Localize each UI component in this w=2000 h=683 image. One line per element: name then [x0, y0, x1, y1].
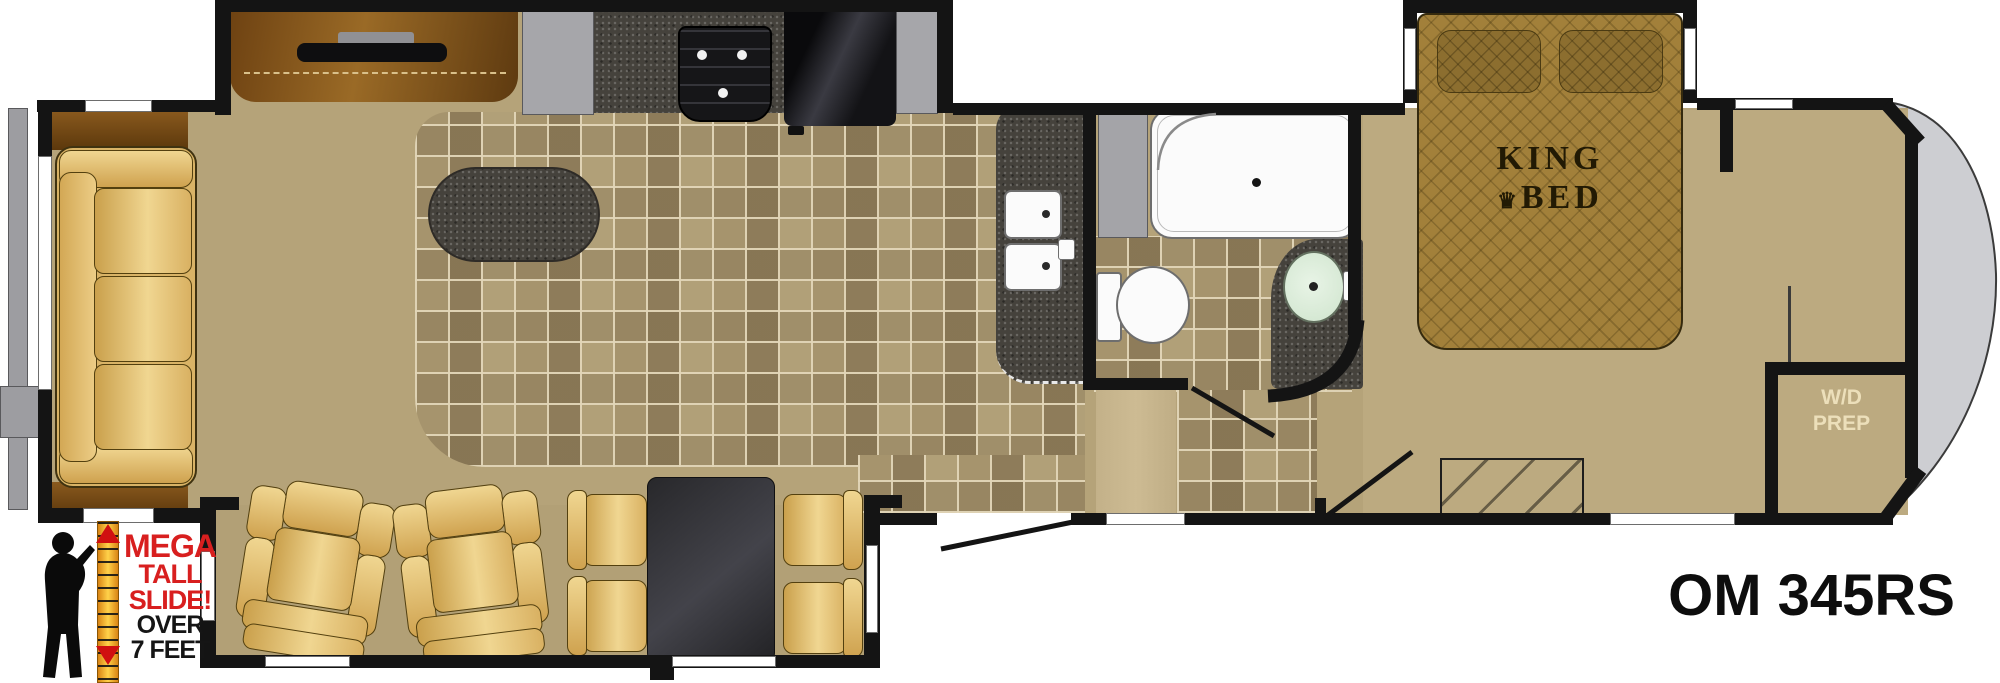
callout-word: OVER: [112, 613, 228, 638]
king-bed-label: KING ♛BED: [1417, 140, 1683, 221]
crown-icon: ♛: [1497, 188, 1521, 213]
callout-word: TALL: [112, 561, 228, 587]
callout-word: SLIDE!: [112, 587, 228, 613]
callout-word: 7 FEET: [112, 638, 228, 663]
king-bed-label-line2: ♛BED: [1417, 178, 1683, 221]
wd-prep-label: W/D PREP: [1778, 385, 1905, 437]
entry-door-swing: [941, 522, 1073, 549]
person-silhouette: [43, 532, 95, 678]
king-bed-label-line1: KING: [1417, 140, 1683, 178]
mega-slide-callout: MEGA TALL SLIDE! OVER 7 FEET: [112, 531, 228, 663]
rv-floorplan: MEGA TALL SLIDE! OVER 7 FEET KING ♛BED W…: [0, 0, 2000, 683]
callout-word: MEGA: [112, 531, 228, 561]
bedroom-door-swing: [1324, 452, 1412, 518]
wd-prep-line1: W/D: [1778, 385, 1905, 411]
bathroom-door-swing: [1192, 388, 1274, 436]
wd-prep-line2: PREP: [1778, 411, 1905, 437]
model-number: OM 345RS: [1440, 562, 1955, 629]
